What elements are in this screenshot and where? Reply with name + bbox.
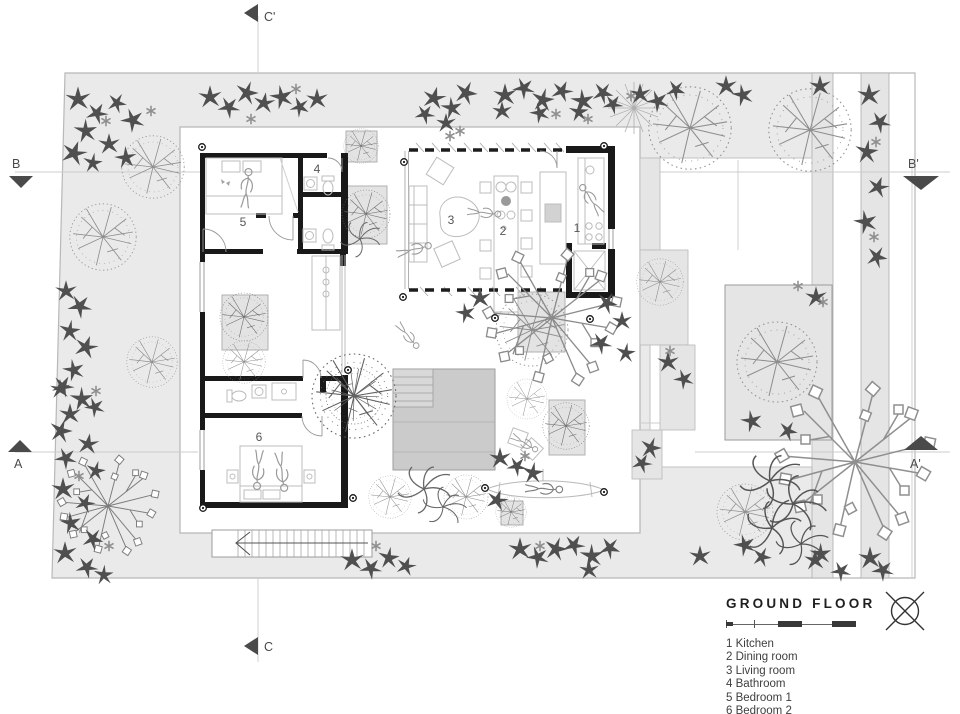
section-label-a-right: A' bbox=[910, 457, 921, 471]
courtyard-deck bbox=[393, 369, 495, 470]
room-label-kitchen: 1 bbox=[574, 221, 581, 235]
scale-bar bbox=[726, 620, 856, 628]
legend-items: 1 Kitchen 2 Dining room 3 Living room 4 … bbox=[726, 638, 954, 714]
kitchen-window bbox=[606, 229, 616, 249]
section-triangle-a-left bbox=[8, 440, 32, 452]
section-label-b-left: B bbox=[12, 157, 20, 171]
room-label-dining: 2 bbox=[500, 224, 507, 238]
scale-bar-tick bbox=[754, 620, 755, 628]
staircase bbox=[212, 530, 372, 557]
section-label-a-left: A bbox=[14, 457, 23, 471]
section-label-c-top: C' bbox=[264, 10, 275, 24]
floor-plan-page: 1 2 3 4 5 6 C' C B A B' A' GROUND FLOOR … bbox=[0, 0, 960, 714]
north-compass-icon bbox=[882, 590, 928, 636]
room-label-bedroom1: 5 bbox=[240, 215, 247, 229]
scale-bar-block bbox=[778, 621, 802, 627]
legend-item-living: 3 Living room bbox=[726, 665, 954, 678]
legend-item-bathroom: 4 Bathroom bbox=[726, 678, 954, 691]
legend-item-bedroom2: 6 Bedroom 2 bbox=[726, 705, 954, 714]
room-label-living: 3 bbox=[448, 213, 455, 227]
section-triangle-c-bottom bbox=[244, 637, 258, 655]
section-label-b-right: B' bbox=[908, 157, 919, 171]
room-label-bathroom: 4 bbox=[314, 162, 321, 176]
section-label-c-bottom: C bbox=[264, 640, 273, 654]
room-label-bedroom2: 6 bbox=[256, 430, 263, 444]
scale-bar-block bbox=[832, 621, 856, 627]
legend: GROUND FLOOR 1 Kitchen 2 Dining room 3 L… bbox=[726, 590, 954, 714]
legend-item-kitchen: 1 Kitchen bbox=[726, 638, 954, 651]
section-triangle-b-left bbox=[9, 176, 33, 188]
legend-item-bedroom1: 5 Bedroom 1 bbox=[726, 692, 954, 705]
section-triangle-b-right bbox=[903, 176, 939, 190]
section-triangle-c-top bbox=[244, 4, 258, 22]
legend-item-dining: 2 Dining room bbox=[726, 651, 954, 664]
scale-bar-block bbox=[726, 622, 733, 626]
